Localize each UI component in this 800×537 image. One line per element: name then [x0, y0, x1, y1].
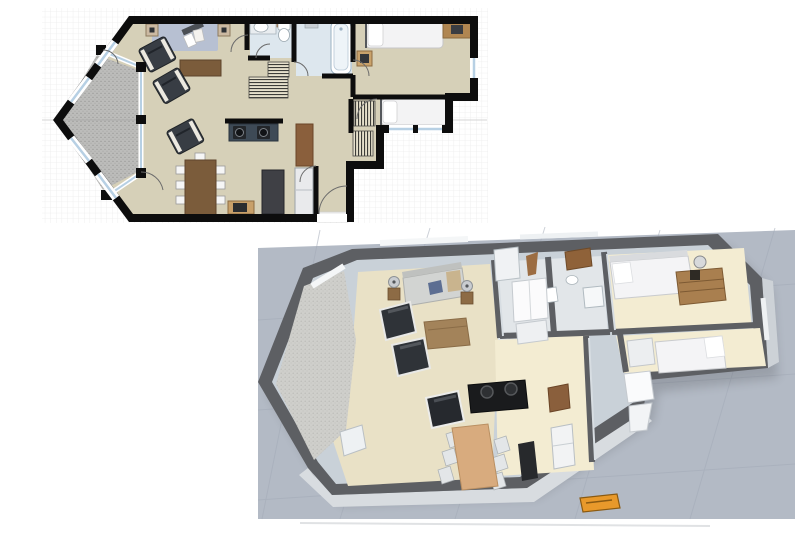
closet-doors [516, 320, 548, 344]
wardrobe [249, 77, 288, 98]
bed-3d [655, 336, 726, 373]
wardrobe [354, 101, 375, 126]
dresser-box [690, 270, 700, 280]
armchair-3d [426, 391, 464, 428]
shower [494, 247, 520, 281]
pantry-3d [548, 384, 570, 412]
striped-throw [446, 270, 462, 292]
dining-table [185, 160, 216, 215]
cooktop-island-3d [468, 380, 528, 413]
kitchen-island [262, 170, 284, 214]
toilet [279, 29, 290, 42]
table-lamp [461, 281, 473, 305]
nightstand [357, 51, 372, 66]
ground-edge [300, 523, 710, 526]
vanity [565, 248, 592, 270]
speaker [218, 24, 230, 36]
table-lamp [388, 277, 400, 301]
refrigerator-3d [551, 424, 575, 469]
floorplan-canvas [0, 0, 800, 537]
wardrobe [268, 62, 289, 77]
cooktop-counter [229, 124, 278, 141]
pillow [704, 336, 725, 358]
speaker [146, 24, 158, 36]
armchair-3d [380, 302, 416, 340]
floorplan-image [0, 0, 800, 537]
floorplan-3d [258, 227, 795, 526]
bed [366, 21, 443, 48]
pillow [612, 262, 633, 284]
fan [694, 256, 706, 268]
sink-3d [566, 276, 578, 285]
wardrobe [353, 131, 373, 156]
sideboard [180, 60, 221, 76]
white-table-3d [627, 338, 655, 367]
bathtub-3d [583, 286, 604, 308]
coffee-table [424, 318, 470, 349]
media-stand [228, 201, 254, 214]
refrigerator [295, 168, 313, 215]
floorplan-2d [42, 8, 488, 223]
armchair-3d [392, 338, 430, 376]
bed [381, 99, 447, 125]
pantry-cabinet [296, 124, 313, 166]
entry-opening [317, 214, 347, 222]
